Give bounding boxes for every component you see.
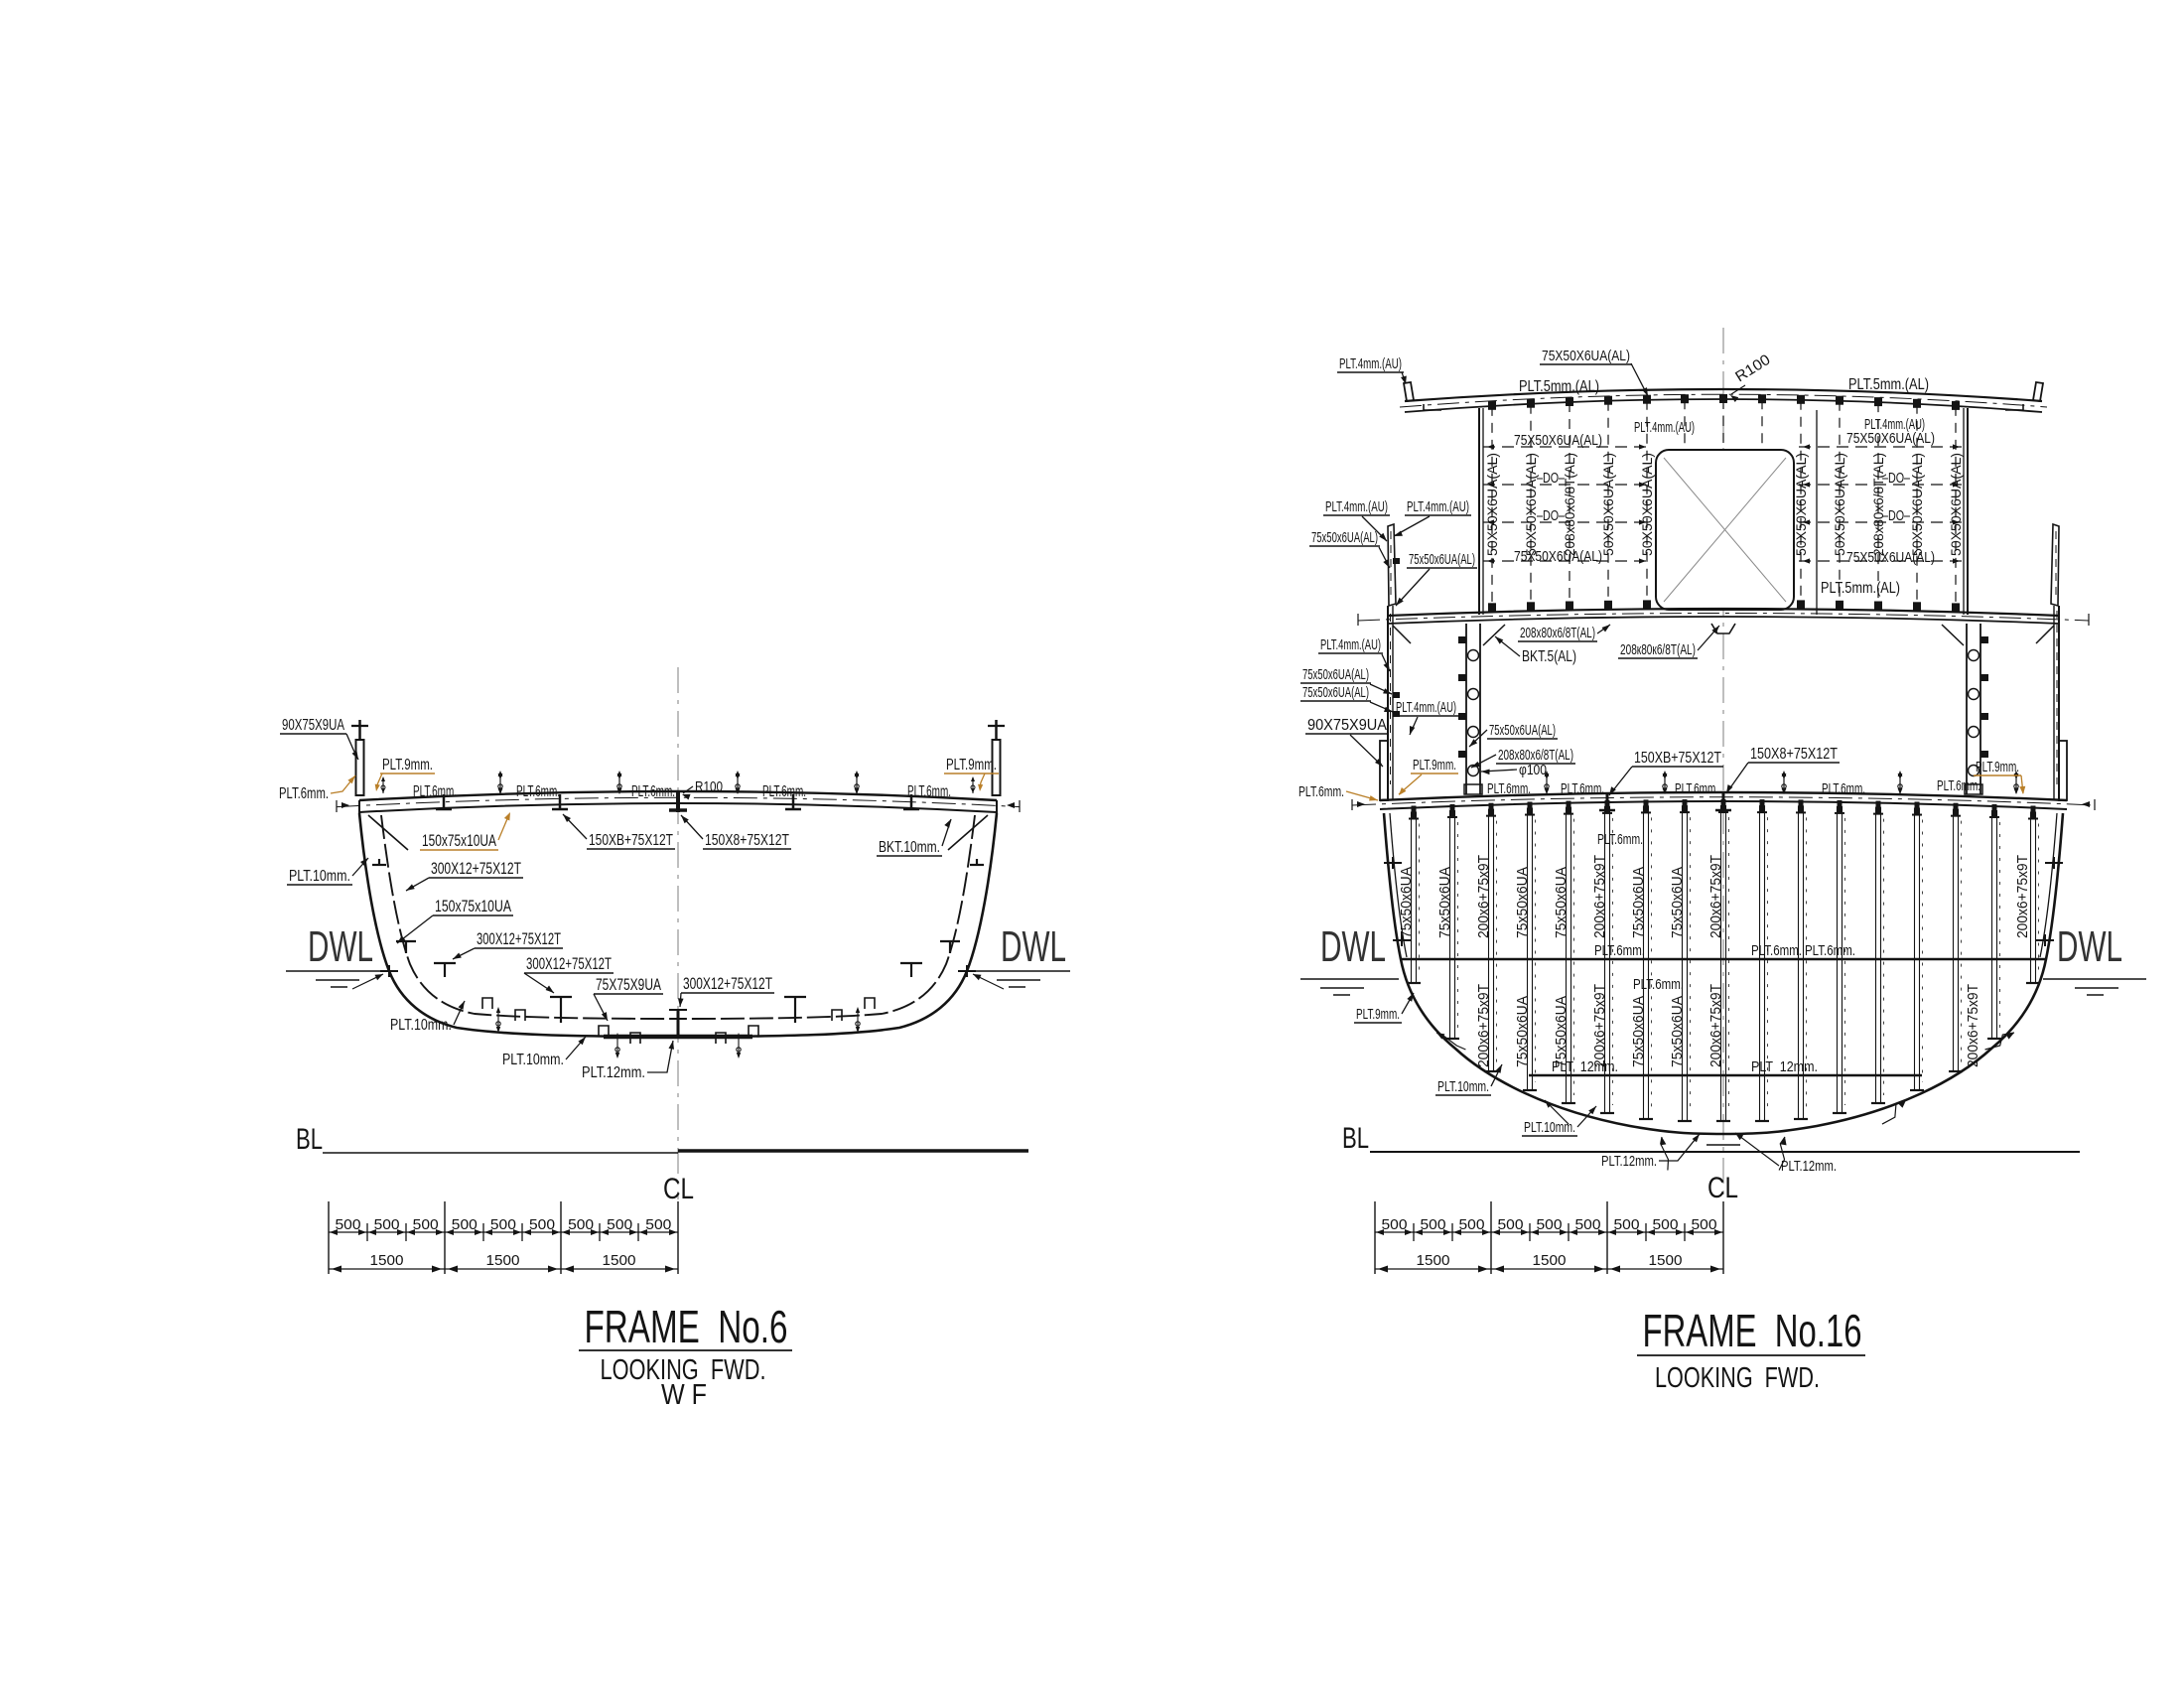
svg-text:75x50x6UA(AL): 75x50x6UA(AL) — [1302, 666, 1369, 683]
svg-text:75X50X6UA(AL): 75X50X6UA(AL) — [1514, 432, 1602, 449]
svg-text:300X12+75X12T: 300X12+75X12T — [477, 929, 561, 948]
svg-text:PLT.6mm.: PLT.6mm. — [1675, 780, 1718, 797]
svg-text:PLT.10mm.: PLT.10mm. — [1524, 1119, 1575, 1136]
svg-text:PLT.6mm.: PLT.6mm. — [1561, 780, 1604, 797]
svg-text:75x50x6UA: 75x50x6UA — [1553, 996, 1570, 1067]
svg-text:75x50x6UA: 75x50x6UA — [1436, 867, 1453, 938]
svg-text:PLT.4mm.(AU): PLT.4mm.(AU) — [1325, 498, 1388, 515]
svg-text:208к80к6/8T(AL): 208к80к6/8T(AL) — [1620, 641, 1696, 658]
svg-text:208x80x6/8T(AL): 208x80x6/8T(AL) — [1562, 453, 1577, 556]
svg-text:PLT.6mm.: PLT.6mm. — [762, 783, 806, 800]
svg-text:PLT.6mm.: PLT.6mm. — [516, 783, 560, 800]
svg-text:W F: W F — [661, 1379, 707, 1411]
svg-text:500: 500 — [1692, 1216, 1717, 1233]
svg-text:–DO–: –DO– — [1882, 470, 1910, 487]
svg-text:PLT.6mm.: PLT.6mm. — [1487, 780, 1531, 797]
svg-text:75x50x6UA: 75x50x6UA — [1669, 996, 1686, 1067]
svg-text:300X12+75X12T: 300X12+75X12T — [683, 974, 772, 993]
svg-text:75x50x6UA(AL): 75x50x6UA(AL) — [1409, 551, 1475, 568]
svg-text:200x6+75x9T: 200x6+75x9T — [1707, 984, 1724, 1067]
svg-text:75x50x6UA: 75x50x6UA — [1669, 867, 1686, 938]
svg-text:500: 500 — [490, 1216, 516, 1233]
svg-text:200x6+75x9T: 200x6+75x9T — [1707, 855, 1724, 938]
svg-text:300X12+75X12T: 300X12+75X12T — [431, 859, 521, 878]
svg-text:50X50X6UA(AL): 50X50X6UA(AL) — [1793, 453, 1809, 556]
svg-text:PLT.5mm.(AL): PLT.5mm.(AL) — [1848, 376, 1929, 393]
svg-text:PLT.5mm.(AL): PLT.5mm.(AL) — [1519, 378, 1599, 395]
svg-text:75x50x6UA: 75x50x6UA — [1553, 867, 1570, 938]
svg-text:PLT.6mm.: PLT.6mm. — [1594, 942, 1645, 959]
svg-text:75x50x6UA: 75x50x6UA — [1514, 867, 1531, 938]
svg-text:PLT.4mm.(AU): PLT.4mm.(AU) — [1339, 355, 1402, 372]
svg-text:PLT.6mm.: PLT.6mm. — [907, 783, 951, 800]
svg-text:1500: 1500 — [1417, 1252, 1450, 1269]
svg-text:BL: BL — [1342, 1122, 1369, 1155]
svg-text:1500: 1500 — [486, 1252, 520, 1269]
svg-text:90X75X9UA: 90X75X9UA — [282, 717, 344, 734]
svg-text:φ100: φ100 — [1519, 762, 1547, 778]
svg-text:PLT.10mm.: PLT.10mm. — [1437, 1078, 1489, 1095]
svg-text:75x50x6UA(AL): 75x50x6UA(AL) — [1302, 684, 1369, 701]
svg-text:1500: 1500 — [1533, 1252, 1567, 1269]
svg-text:PLT.6mm.: PLT.6mm. — [1597, 831, 1643, 848]
svg-text:PLT.12mm.: PLT.12mm. — [582, 1064, 645, 1081]
svg-text:PLT.6mm.: PLT.6mm. — [631, 783, 675, 800]
svg-text:50X50X6UA(AL): 50X50X6UA(AL) — [1909, 453, 1925, 556]
svg-text:150X8+75X12T: 150X8+75X12T — [705, 832, 789, 849]
svg-text:500: 500 — [1498, 1216, 1524, 1233]
svg-text:BL: BL — [296, 1123, 323, 1156]
svg-text:–DO–: –DO– — [1882, 507, 1910, 524]
svg-text:PLT.9mm.: PLT.9mm. — [1356, 1006, 1400, 1023]
svg-text:75X50X6UA(AL): 75X50X6UA(AL) — [1846, 430, 1935, 447]
svg-text:BKT.5(AL): BKT.5(AL) — [1522, 648, 1576, 665]
svg-text:500: 500 — [1421, 1216, 1446, 1233]
svg-text:50X50X6UA(AL): 50X50X6UA(AL) — [1832, 453, 1847, 556]
svg-text:PLT.4mm.(AU): PLT.4mm.(AU) — [1407, 498, 1469, 515]
svg-text:75x50x6UA: 75x50x6UA — [1630, 867, 1647, 938]
svg-text:PLT.6mm.: PLT.6mm. — [413, 783, 457, 800]
svg-text:150x75x10UA: 150x75x10UA — [435, 897, 511, 915]
svg-text:500: 500 — [645, 1216, 671, 1233]
svg-text:R100: R100 — [695, 778, 723, 795]
svg-text:PLT.12mm.: PLT.12mm. — [1601, 1153, 1657, 1170]
svg-text:500: 500 — [529, 1216, 555, 1233]
svg-text:200x6+75x9T: 200x6+75x9T — [1591, 855, 1608, 938]
svg-text:PLT.4mm.(AU): PLT.4mm.(AU) — [1634, 419, 1695, 436]
svg-text:PLT.12mm.: PLT.12mm. — [1781, 1158, 1837, 1175]
svg-text:500: 500 — [1575, 1216, 1601, 1233]
svg-text:75X75X9UA: 75X75X9UA — [596, 975, 661, 994]
svg-text:50X50X6UA(AL): 50X50X6UA(AL) — [1523, 453, 1539, 556]
svg-text:75x50x6UA(AL): 75x50x6UA(AL) — [1311, 529, 1378, 546]
svg-text:PLT.6mm.: PLT.6mm. — [1822, 780, 1865, 797]
svg-text:PLT.10mm.: PLT.10mm. — [502, 1052, 564, 1068]
svg-text:300X12+75X12T: 300X12+75X12T — [526, 954, 612, 973]
svg-text:208x80x6/8T(AL): 208x80x6/8T(AL) — [1870, 453, 1886, 556]
svg-text:75x50x6UA(AL): 75x50x6UA(AL) — [1489, 722, 1556, 739]
svg-text:500: 500 — [1614, 1216, 1640, 1233]
svg-text:DWL: DWL — [2057, 922, 2122, 971]
svg-text:CL: CL — [1707, 1172, 1738, 1204]
svg-text:500: 500 — [452, 1216, 478, 1233]
svg-text:50X50X6UA(AL): 50X50X6UA(AL) — [1600, 453, 1616, 556]
svg-text:PLT.6mm.: PLT.6mm. — [1298, 783, 1344, 800]
svg-text:500: 500 — [336, 1216, 361, 1233]
svg-text:DWL: DWL — [1001, 922, 1066, 971]
svg-text:75x50x6UA: 75x50x6UA — [1514, 996, 1531, 1067]
svg-text:500: 500 — [374, 1216, 400, 1233]
svg-text:200x6+75x9T: 200x6+75x9T — [1475, 855, 1492, 938]
svg-text:200x6+75x9T: 200x6+75x9T — [2014, 855, 2031, 938]
svg-text:500: 500 — [568, 1216, 594, 1233]
svg-text:500: 500 — [1382, 1216, 1408, 1233]
svg-text:200x6+75x9T: 200x6+75x9T — [1475, 984, 1492, 1067]
svg-text:50X50X6UA(AL): 50X50X6UA(AL) — [1484, 453, 1500, 556]
svg-text:1500: 1500 — [603, 1252, 636, 1269]
svg-text:500: 500 — [1537, 1216, 1563, 1233]
svg-text:DWL: DWL — [308, 922, 373, 971]
svg-text:75x50x6UA: 75x50x6UA — [1398, 867, 1415, 938]
svg-text:200x6+75x9T: 200x6+75x9T — [1591, 984, 1608, 1067]
svg-text:75X50X6UA(AL): 75X50X6UA(AL) — [1542, 348, 1630, 364]
svg-text:PLT.10mm.: PLT.10mm. — [390, 1017, 452, 1034]
svg-text:PLT.6mm.: PLT.6mm. — [1751, 942, 1802, 959]
svg-text:PLT.10mm.: PLT.10mm. — [289, 868, 350, 885]
svg-text:PLT.4mm.(AU): PLT.4mm.(AU) — [1396, 699, 1456, 716]
svg-text:200x6+75x9T: 200x6+75x9T — [1965, 984, 1981, 1067]
svg-text:PLT.9mm.: PLT.9mm. — [946, 757, 997, 774]
svg-text:150X8+75X12T: 150X8+75X12T — [1750, 746, 1838, 763]
svg-text:150XB+75X12T: 150XB+75X12T — [1634, 750, 1721, 767]
svg-text:PLT.9mm.: PLT.9mm. — [1413, 757, 1456, 774]
svg-text:500: 500 — [607, 1216, 632, 1233]
svg-text:150x75x10UA: 150x75x10UA — [422, 831, 496, 850]
svg-text:90X75X9UA: 90X75X9UA — [1307, 717, 1387, 734]
svg-text:50X50X6UA(AL): 50X50X6UA(AL) — [1639, 453, 1655, 556]
svg-text:PLT 12mm.: PLT 12mm. — [1552, 1058, 1618, 1075]
svg-text:208x80x6/8T(AL): 208x80x6/8T(AL) — [1520, 625, 1595, 641]
svg-text:PLT.9mm.: PLT.9mm. — [1976, 759, 2019, 775]
svg-text:PLT.9mm.: PLT.9mm. — [382, 757, 433, 774]
svg-text:500: 500 — [1653, 1216, 1679, 1233]
svg-text:PLT.6mm.: PLT.6mm. — [1937, 777, 1980, 794]
svg-text:PLT.4mm.(AU): PLT.4mm.(AU) — [1320, 636, 1381, 653]
svg-text:500: 500 — [1459, 1216, 1485, 1233]
svg-text:1500: 1500 — [1649, 1252, 1683, 1269]
svg-text:PLT.5mm.(AL): PLT.5mm.(AL) — [1821, 580, 1900, 597]
svg-text:PLT.6mm.: PLT.6mm. — [1805, 942, 1855, 959]
svg-text:BKT.10mm.: BKT.10mm. — [879, 839, 940, 856]
svg-text:FRAME No.16: FRAME No.16 — [1643, 1305, 1862, 1356]
svg-text:500: 500 — [413, 1216, 439, 1233]
svg-text:50X50X6UA(AL): 50X50X6UA(AL) — [1948, 453, 1964, 556]
svg-text:LOOKING FWD.: LOOKING FWD. — [1655, 1362, 1820, 1394]
svg-text:FRAME No.6: FRAME No.6 — [585, 1301, 788, 1352]
svg-text:DWL: DWL — [1320, 922, 1386, 971]
svg-text:150XB+75X12T: 150XB+75X12T — [589, 832, 673, 849]
svg-text:PLT.6mm.: PLT.6mm. — [279, 785, 329, 802]
svg-text:PLT.6mm.: PLT.6mm. — [1633, 976, 1684, 993]
svg-text:1500: 1500 — [370, 1252, 404, 1269]
svg-text:75x50x6UA: 75x50x6UA — [1630, 996, 1647, 1067]
svg-text:PLT 12mm.: PLT 12mm. — [1751, 1058, 1818, 1075]
svg-text:CL: CL — [663, 1173, 694, 1205]
